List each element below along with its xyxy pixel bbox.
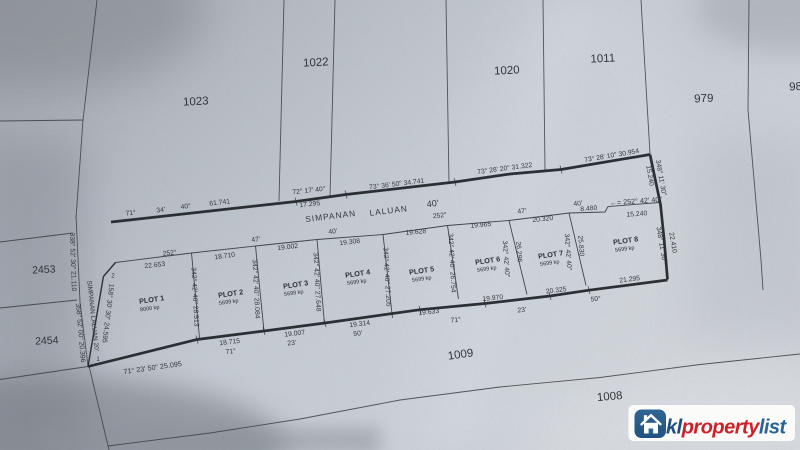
svg-text:2453: 2453 bbox=[32, 263, 56, 276]
svg-text:47': 47' bbox=[251, 236, 261, 244]
svg-text:23': 23' bbox=[287, 339, 297, 347]
svg-text:71°: 71° bbox=[125, 208, 136, 217]
svg-text:34': 34' bbox=[156, 206, 166, 214]
svg-text:klpropertylist: klpropertylist bbox=[666, 417, 788, 439]
svg-text:252°: 252° bbox=[432, 211, 447, 220]
svg-text:1020: 1020 bbox=[494, 64, 520, 77]
svg-text:1023: 1023 bbox=[183, 95, 209, 108]
svg-text:40°: 40° bbox=[180, 202, 191, 211]
svg-text:40': 40' bbox=[426, 198, 439, 209]
svg-text:980: 980 bbox=[789, 81, 800, 94]
svg-text:25.830: 25.830 bbox=[576, 235, 584, 256]
svg-text:1008: 1008 bbox=[596, 390, 623, 404]
svg-text:50': 50' bbox=[353, 330, 363, 338]
svg-text:2454: 2454 bbox=[35, 334, 59, 347]
svg-text:26.296: 26.296 bbox=[514, 241, 522, 262]
svg-text:71°: 71° bbox=[225, 347, 236, 356]
svg-text:1022: 1022 bbox=[303, 56, 329, 69]
svg-text:71°: 71° bbox=[450, 315, 461, 324]
svg-text:8.480: 8.480 bbox=[580, 205, 598, 213]
svg-text:15.240: 15.240 bbox=[626, 210, 647, 218]
svg-text:23': 23' bbox=[517, 307, 527, 315]
svg-text:1011: 1011 bbox=[590, 52, 615, 65]
svg-text:40': 40' bbox=[328, 228, 338, 236]
svg-text:47': 47' bbox=[517, 208, 527, 216]
svg-text:50°: 50° bbox=[590, 294, 601, 303]
svg-text:979: 979 bbox=[694, 93, 714, 106]
